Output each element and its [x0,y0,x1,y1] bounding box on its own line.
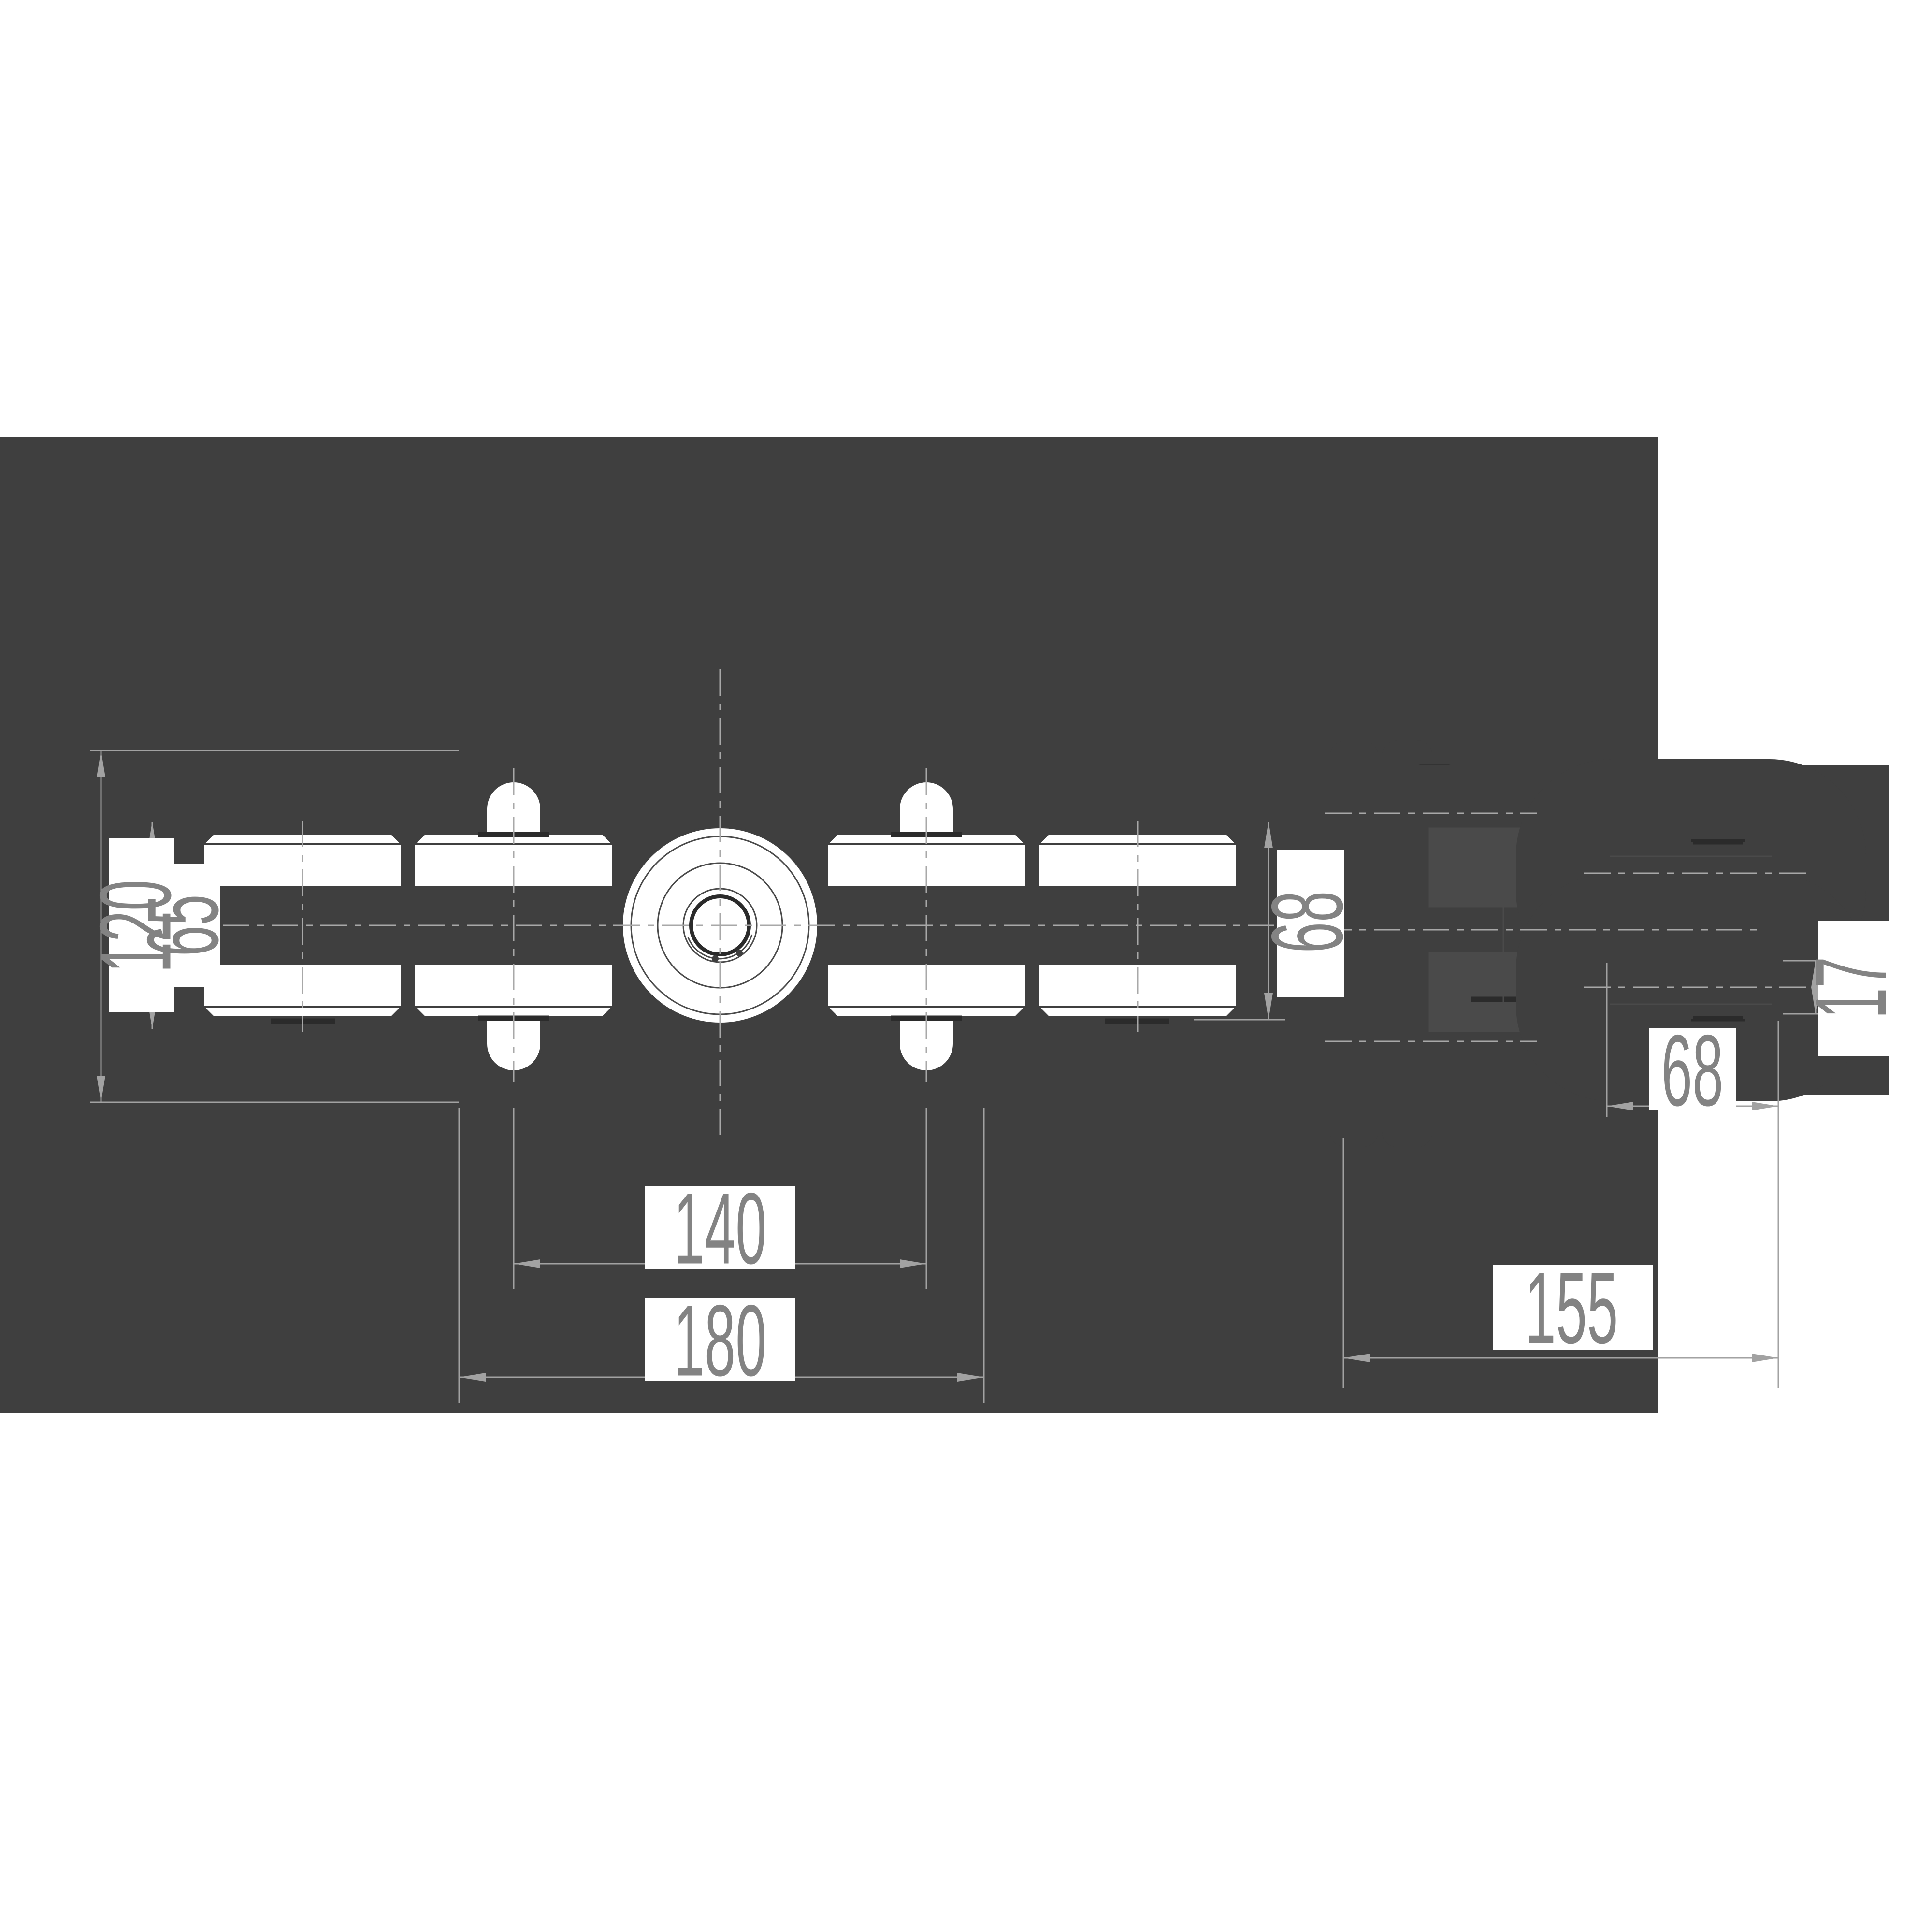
technical-drawing-page: 12065140180681768155 [0,0,1932,1932]
dim-label-17: 17 [1794,957,1907,1019]
dim-label-68-left: 68 [1251,891,1364,953]
circlip-eye [712,955,719,962]
trolley-orthographic-drawing: 12065140180681768155 [0,0,1932,1932]
dim-label-140: 140 [674,1172,767,1285]
dim-label-155: 155 [1525,1252,1618,1365]
dim-label-65: 65 [126,894,239,956]
dim-label-68-right: 68 [1661,1014,1723,1127]
circlip-eye [736,950,743,956]
dim-label-180: 180 [674,1284,767,1397]
